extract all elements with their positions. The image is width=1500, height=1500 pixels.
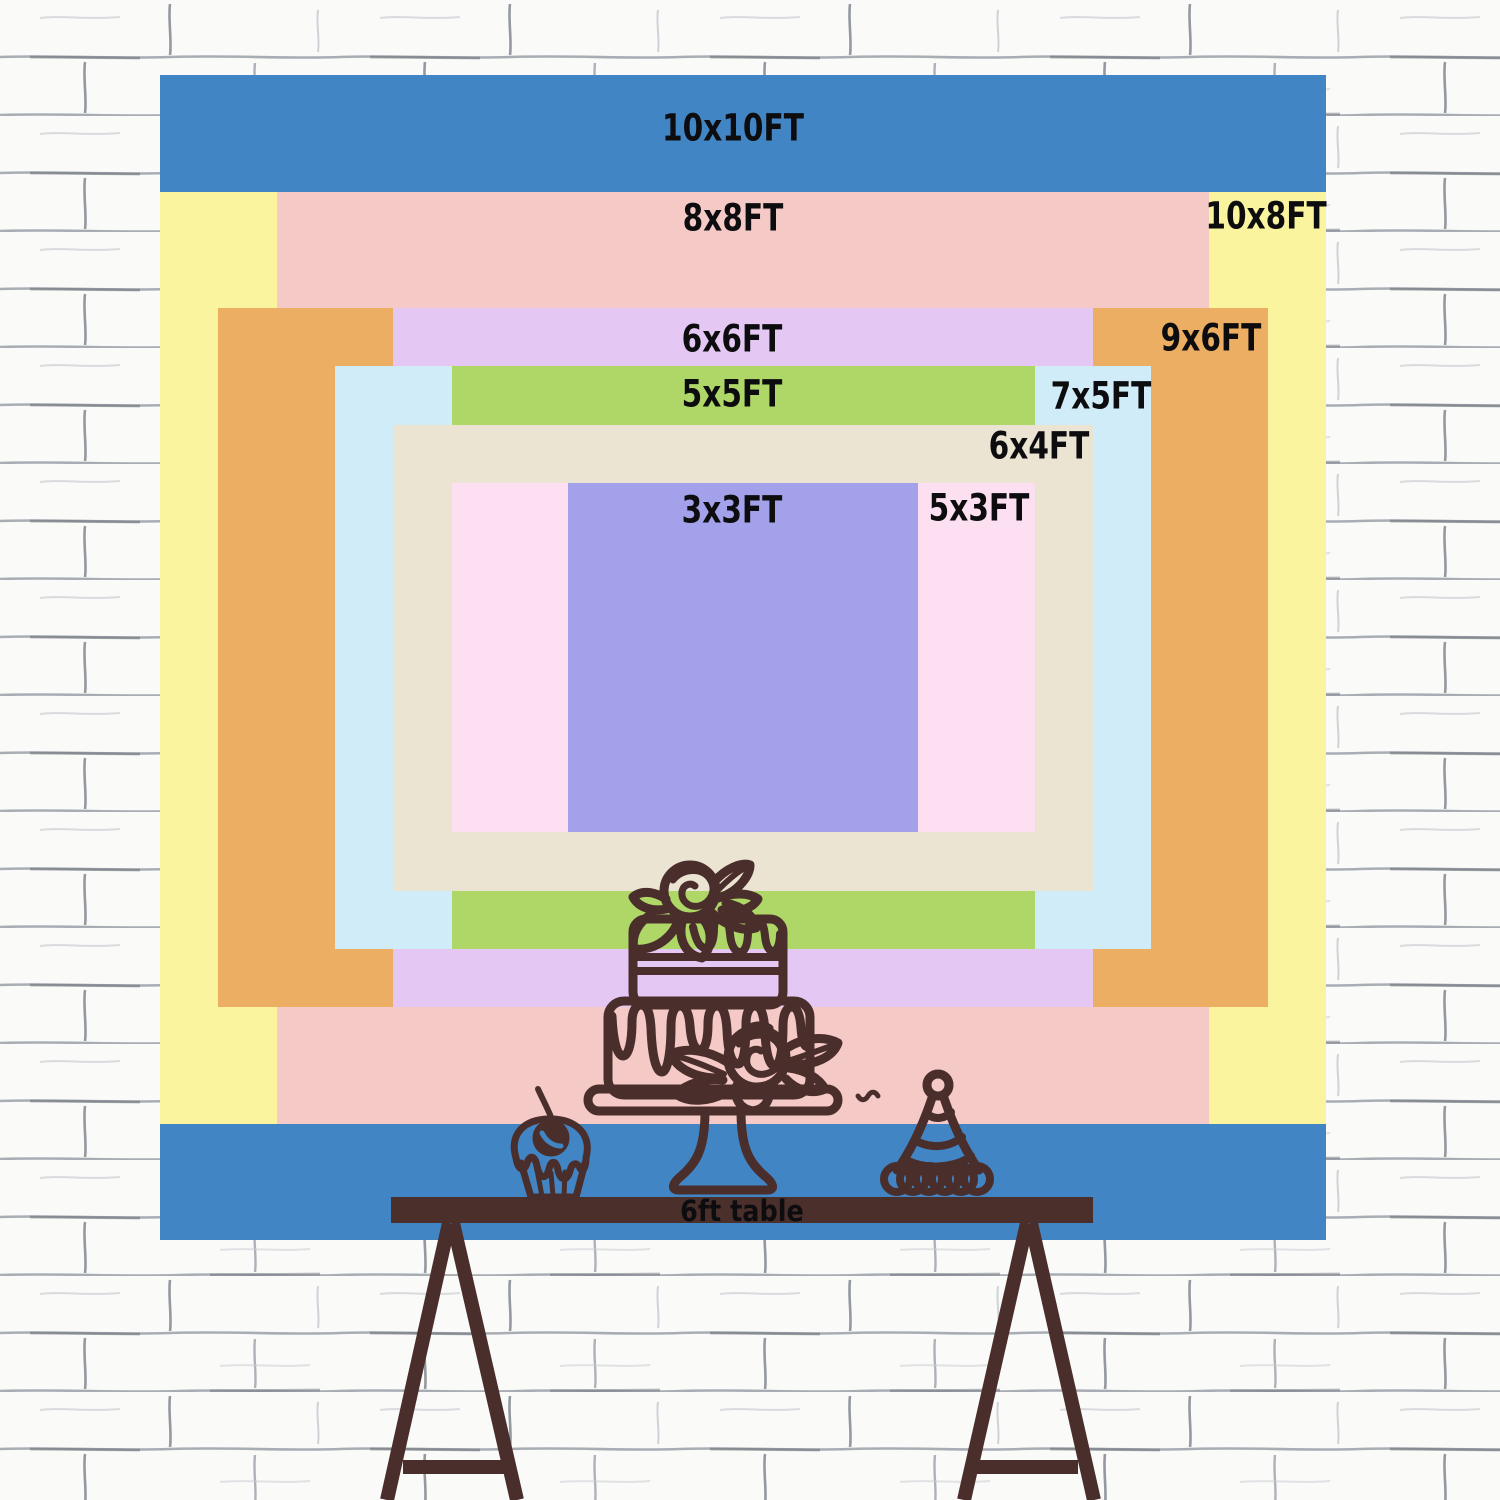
cherry	[536, 1123, 566, 1153]
cake-stand-stem	[673, 1111, 772, 1190]
hat-ruffle	[884, 1166, 990, 1192]
table-left-trestle-legs	[387, 1223, 517, 1500]
cake-illustration	[588, 864, 878, 1190]
backdrop-size-chart: 10x10FT 8x8FT 10x8FT 6x6FT 9x6FT 5x5FT 7…	[0, 0, 1500, 1500]
party-hat-illustration	[884, 1074, 990, 1192]
cupcake-illustration	[514, 1089, 587, 1197]
table-right-trestle-legs	[964, 1223, 1094, 1500]
line-art-overlay	[0, 0, 1500, 1500]
